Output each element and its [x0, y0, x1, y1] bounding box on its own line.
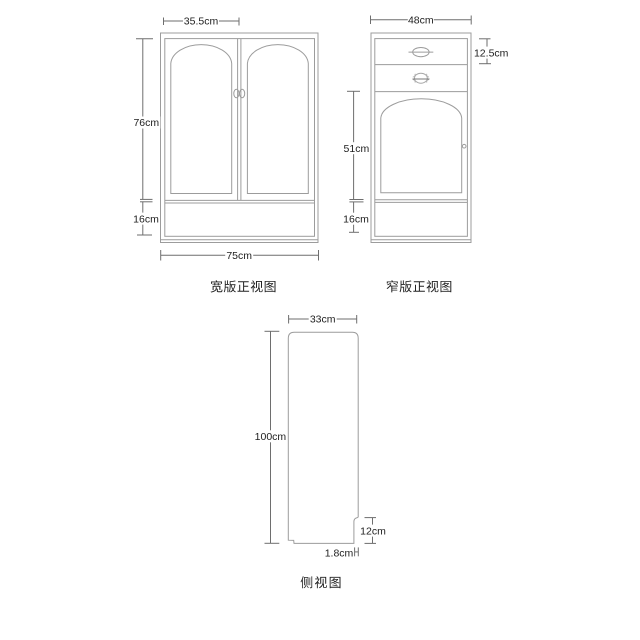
svg-text:51cm: 51cm [344, 143, 370, 155]
svg-text:35.5cm: 35.5cm [184, 16, 219, 28]
svg-text:12.5cm: 12.5cm [474, 47, 509, 59]
svg-text:12cm: 12cm [360, 525, 386, 537]
svg-text:16cm: 16cm [133, 213, 159, 225]
svg-text:75cm: 75cm [226, 250, 252, 262]
svg-text:100cm: 100cm [255, 431, 287, 443]
svg-text:76cm: 76cm [133, 117, 159, 129]
svg-text:48cm: 48cm [408, 15, 434, 27]
svg-text:16cm: 16cm [343, 213, 369, 225]
svg-text:33cm: 33cm [310, 314, 336, 326]
svg-text:1.8cm: 1.8cm [325, 548, 354, 560]
